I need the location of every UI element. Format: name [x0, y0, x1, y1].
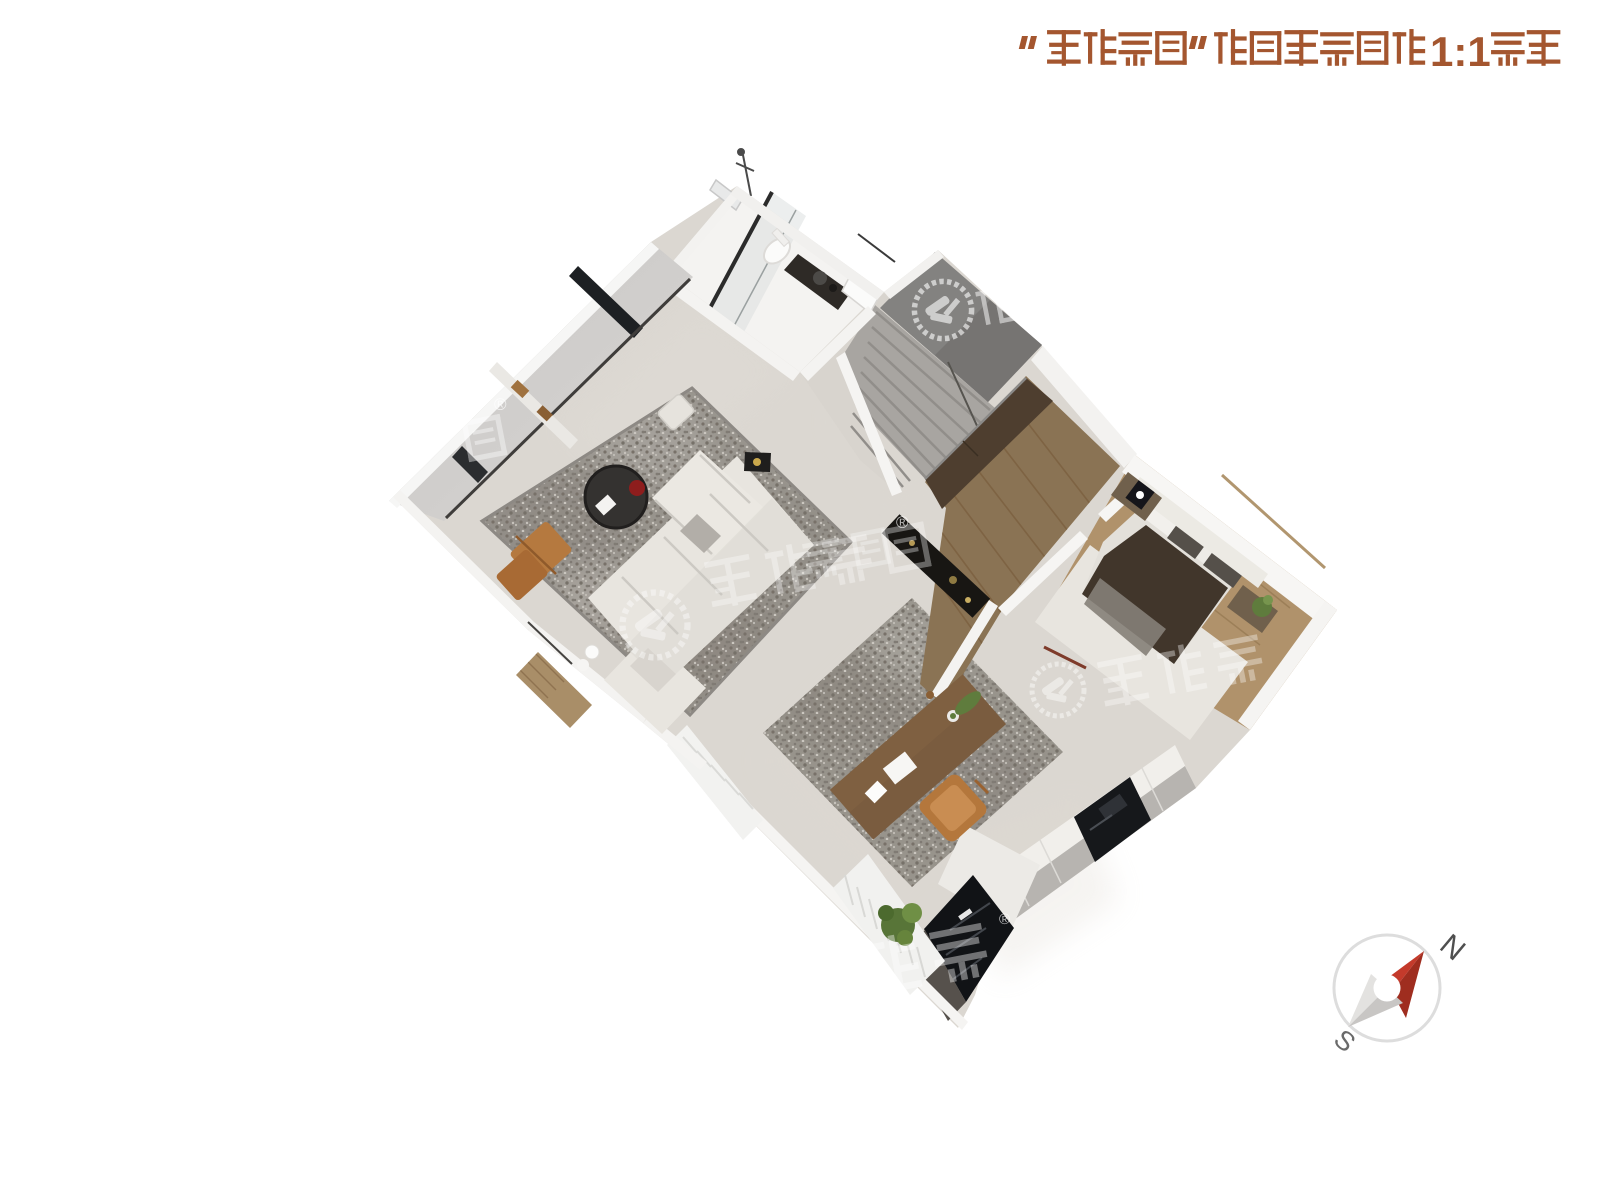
svg-text:S: S [1328, 1024, 1361, 1059]
svg-text:®: ® [999, 911, 1010, 928]
svg-text:®: ® [494, 395, 507, 414]
svg-text:1:1: 1:1 [1430, 28, 1491, 75]
svg-text:N: N [1434, 928, 1472, 967]
svg-text:®: ® [896, 513, 909, 532]
